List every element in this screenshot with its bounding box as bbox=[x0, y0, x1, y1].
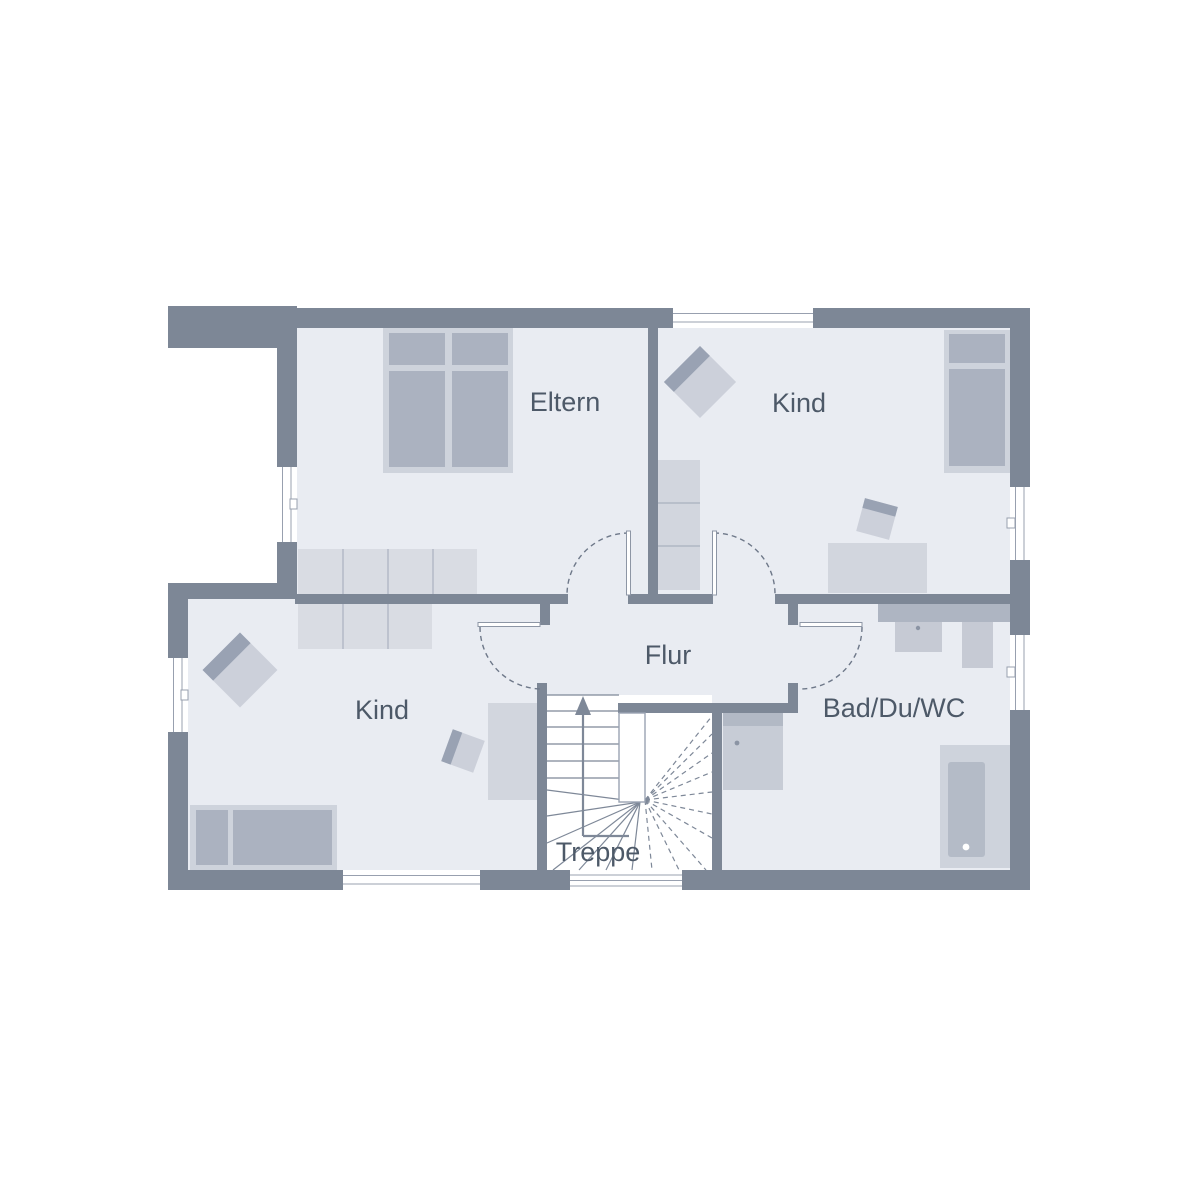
wall-stair-east bbox=[712, 713, 722, 870]
room-label-bad: Bad/Du/WC bbox=[823, 693, 966, 723]
shelf-body bbox=[658, 460, 700, 590]
bed-pillow bbox=[452, 333, 508, 365]
door-leaf bbox=[800, 623, 862, 627]
door-leaf bbox=[478, 623, 540, 627]
wall-stub-bad-door bbox=[788, 604, 798, 625]
bed-mattress bbox=[233, 810, 332, 865]
window-opening bbox=[673, 308, 813, 328]
wall-stair-west bbox=[537, 683, 547, 870]
wall-top bbox=[297, 308, 1030, 328]
door-leaf bbox=[713, 531, 717, 595]
room-label-kind-bottom: Kind bbox=[355, 695, 409, 725]
wardrobe-kind bbox=[298, 604, 432, 649]
wall-top-left-block bbox=[168, 306, 297, 348]
window-bottom-kind bbox=[343, 870, 480, 890]
desk bbox=[488, 703, 538, 800]
bathtub-drain bbox=[963, 844, 970, 851]
wall-flur-top-east bbox=[775, 594, 1010, 604]
bed-mattress bbox=[949, 369, 1005, 466]
shower-head-band bbox=[723, 713, 783, 726]
wardrobe-eltern bbox=[298, 549, 477, 594]
vanity-counter bbox=[878, 604, 1010, 622]
window-bottom-treppe bbox=[570, 870, 682, 890]
window-left-eltern bbox=[277, 467, 297, 542]
window-handle bbox=[1007, 518, 1015, 528]
window-right-kind bbox=[1007, 487, 1030, 560]
room-label-kind-top: Kind bbox=[772, 388, 826, 418]
window-handle bbox=[1007, 667, 1015, 677]
wardrobe-body bbox=[298, 604, 432, 649]
bed-pillow bbox=[949, 334, 1005, 363]
window-handle bbox=[181, 690, 188, 700]
window-handle bbox=[290, 499, 297, 509]
window-right-bad bbox=[1007, 635, 1030, 710]
wall-stair-north bbox=[618, 703, 798, 713]
wall-right bbox=[1010, 308, 1030, 890]
floor-plan-page: Eltern Kind Kind Flur Bad/Du/WC Treppe bbox=[0, 0, 1200, 1200]
wall-flur-top-mid bbox=[628, 594, 713, 604]
shower-drain bbox=[735, 741, 740, 746]
stair-void bbox=[619, 713, 645, 802]
window-left-kind bbox=[168, 658, 188, 732]
wall-center-divider bbox=[648, 328, 658, 604]
wall-stub-kind-door bbox=[540, 604, 550, 625]
window-opening bbox=[343, 870, 480, 890]
door-leaf bbox=[627, 531, 631, 595]
window-top-kind bbox=[673, 308, 813, 328]
floor-plan-drawing: Eltern Kind Kind Flur Bad/Du/WC Treppe bbox=[0, 0, 1200, 1200]
bed-pillow bbox=[389, 333, 445, 365]
desk bbox=[828, 543, 927, 593]
wc bbox=[962, 622, 993, 668]
bed-mattress bbox=[452, 371, 508, 467]
bathtub-basin bbox=[948, 762, 985, 857]
bed-pillow bbox=[196, 810, 228, 865]
room-label-treppe: Treppe bbox=[556, 837, 641, 867]
room-label-flur: Flur bbox=[645, 640, 692, 670]
exterior-notch bbox=[0, 348, 277, 583]
bed-mattress bbox=[389, 371, 445, 467]
wall-flur-top-west bbox=[295, 594, 568, 604]
shelf bbox=[658, 460, 700, 590]
wall-jog bbox=[168, 583, 295, 599]
room-label-eltern: Eltern bbox=[530, 387, 601, 417]
wall-left-lower bbox=[168, 583, 188, 890]
sink-faucet bbox=[916, 626, 920, 630]
